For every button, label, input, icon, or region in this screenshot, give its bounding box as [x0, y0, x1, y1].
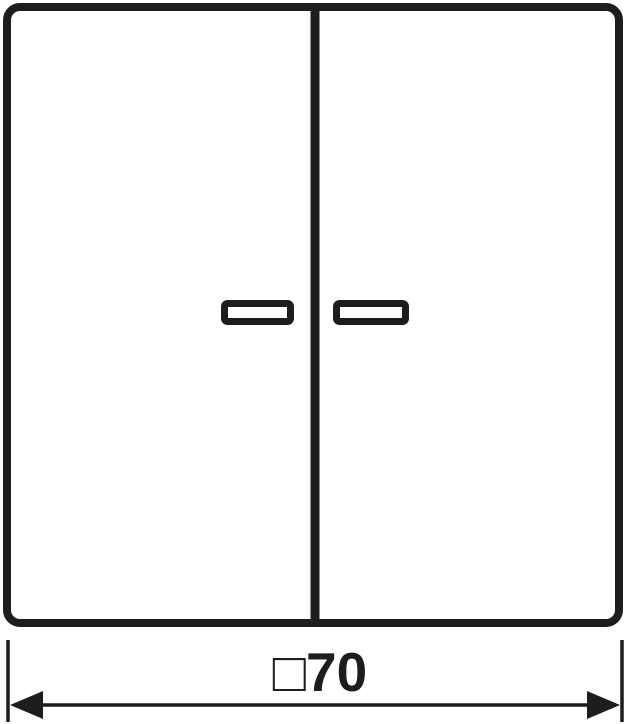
right-arrowhead-icon — [587, 691, 620, 719]
switch-cover-dimension-drawing: □70 — [0, 0, 631, 724]
dimension-annotation: □70 — [8, 640, 622, 722]
left-indicator-window — [225, 304, 291, 322]
right-indicator-window — [337, 304, 406, 322]
left-arrowhead-icon — [10, 691, 43, 719]
dimension-label: □70 — [273, 641, 367, 703]
